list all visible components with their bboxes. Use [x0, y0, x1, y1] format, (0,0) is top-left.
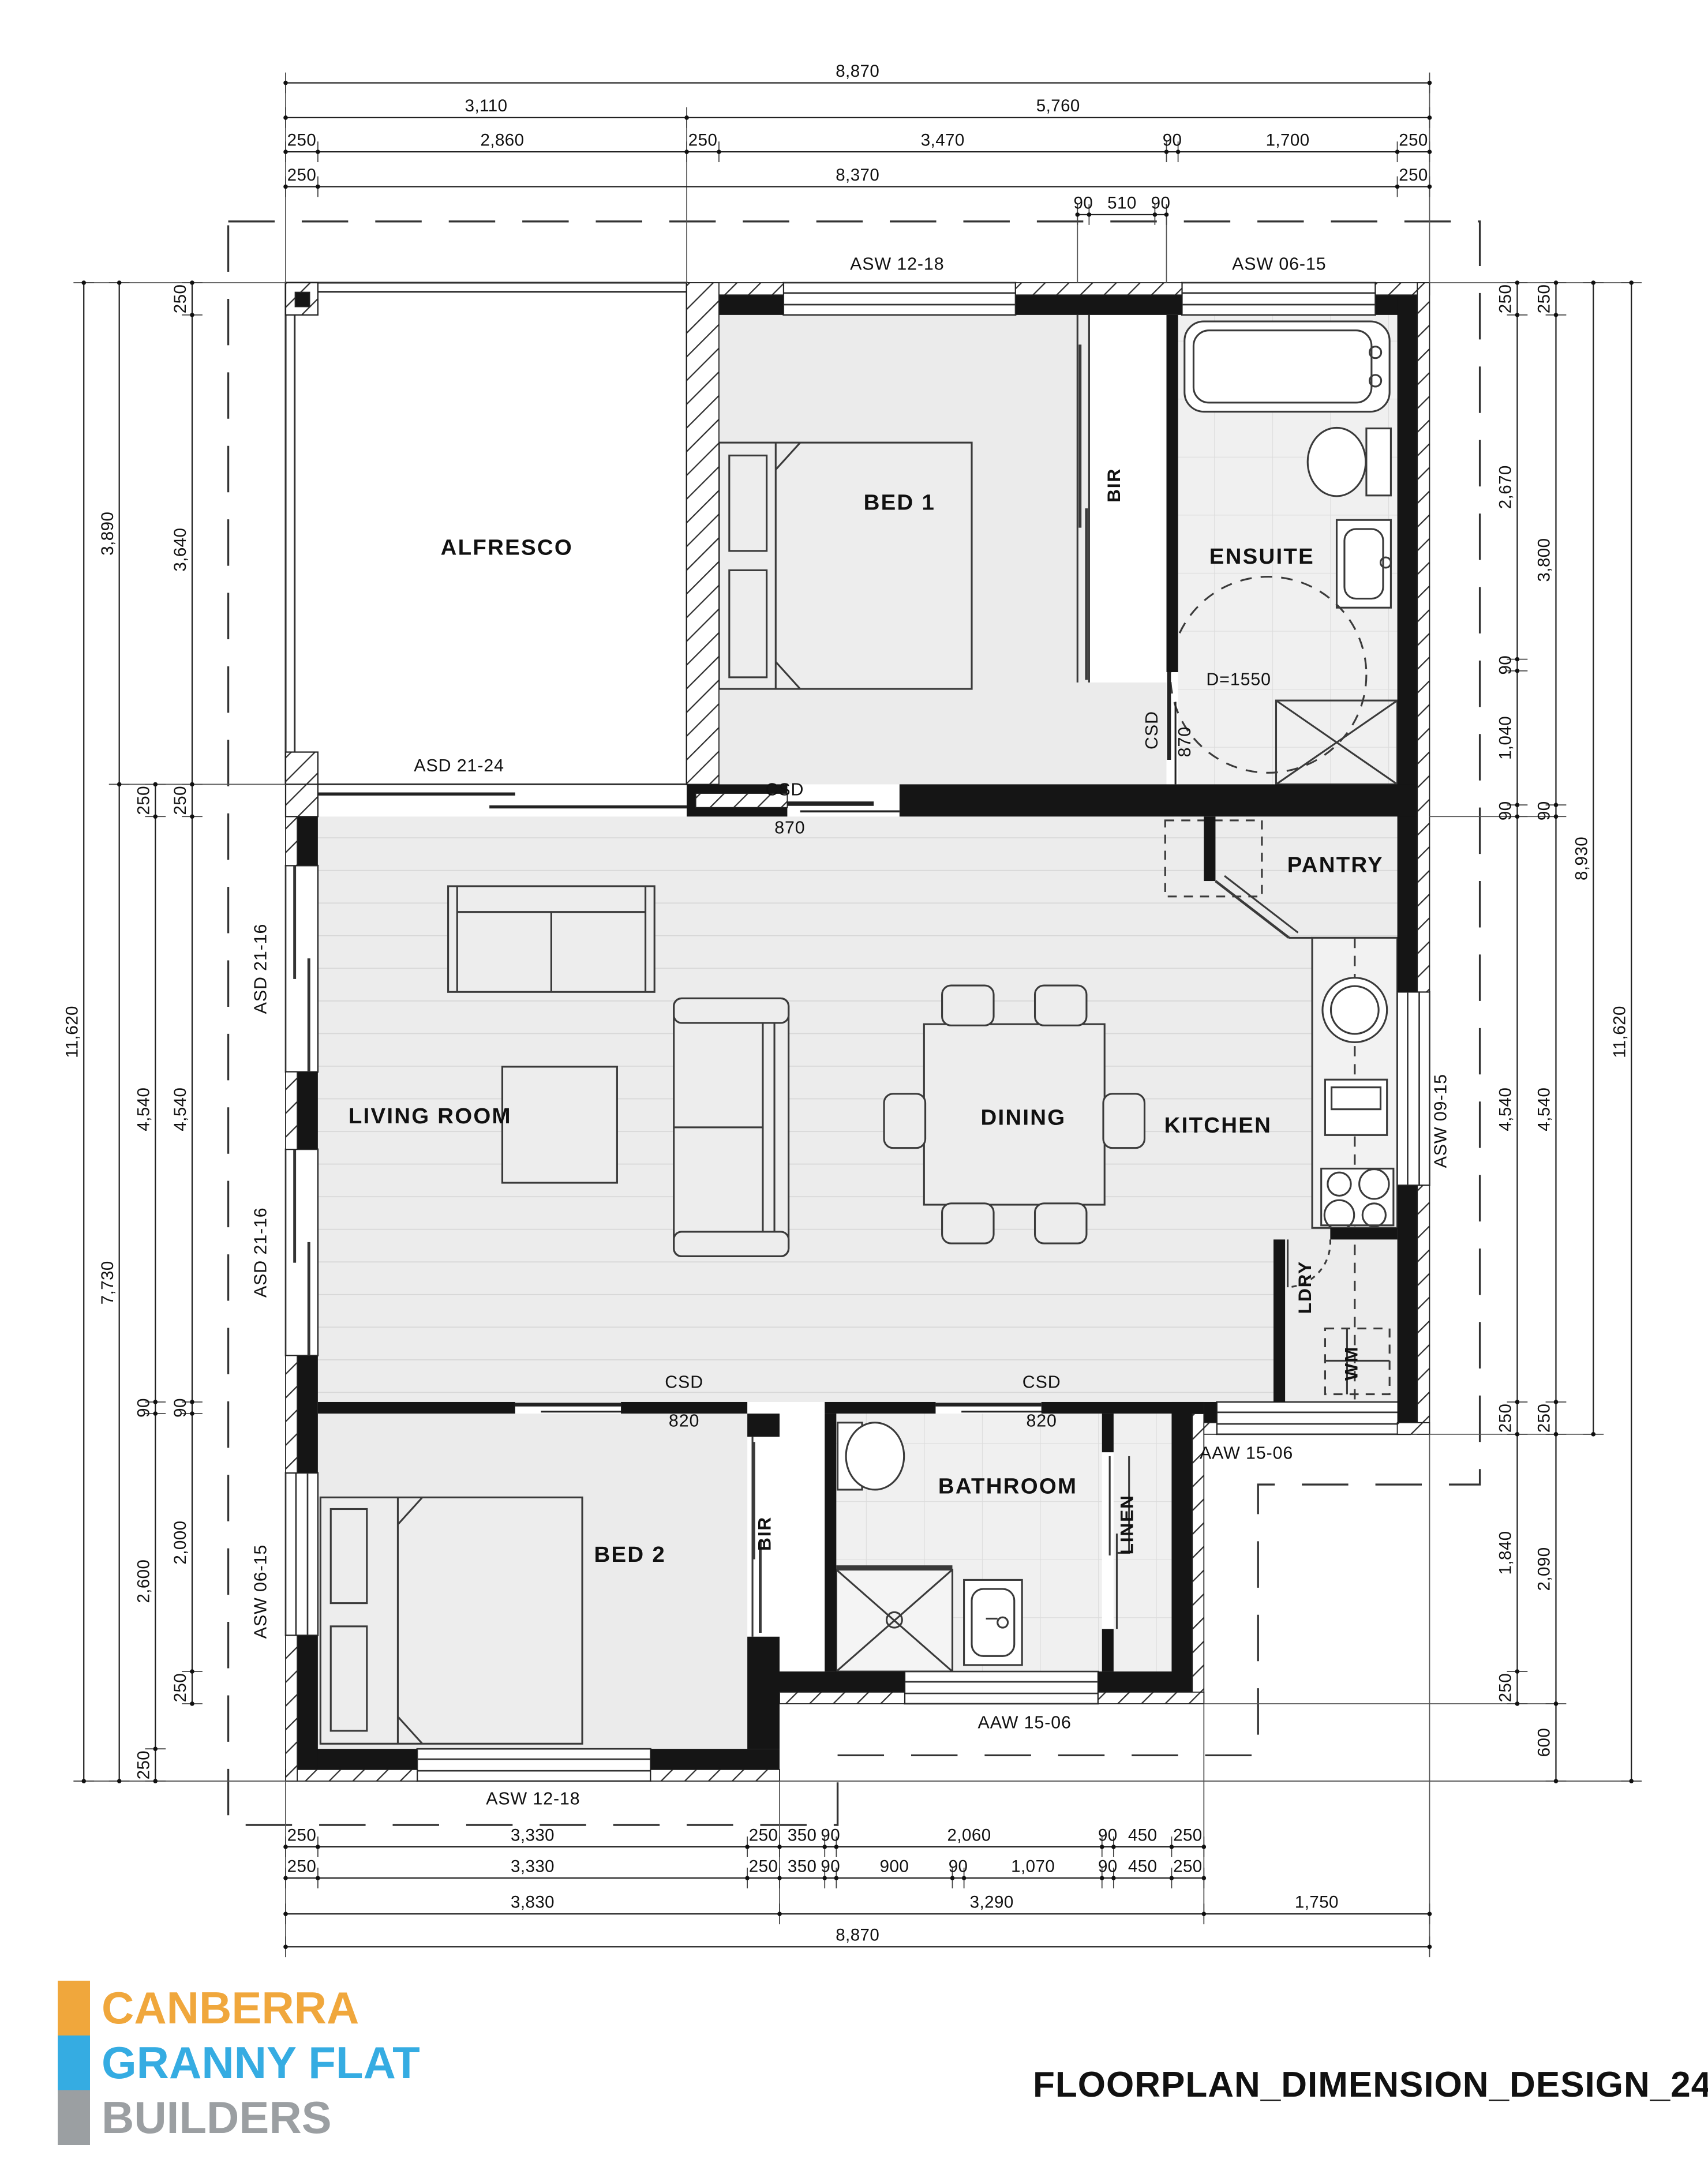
dim-label: 90 [821, 1825, 840, 1845]
room-label: LIVING ROOM [349, 1104, 512, 1129]
room-label: ALFRESCO [441, 535, 573, 560]
dim-dot [1164, 212, 1169, 217]
dim-label: 90 [821, 1857, 840, 1876]
dim-label: 250 [287, 1825, 317, 1845]
dim-dot [684, 115, 689, 120]
dim-dot [1515, 1669, 1520, 1674]
dim-dot [316, 185, 320, 189]
dim-label: 250 [171, 1673, 190, 1703]
dim-label: 250 [688, 130, 718, 149]
dim-dot [1629, 280, 1634, 285]
logo-text-line3: BUILDERS [102, 2090, 621, 2145]
dim-label: 90 [1496, 655, 1515, 675]
door-label: CSD [665, 1372, 703, 1392]
dim-dot [745, 1845, 750, 1849]
dim-dot [1554, 1400, 1559, 1404]
dim-dot [1554, 280, 1559, 285]
window-label: ASD 21-16 [250, 924, 270, 1014]
logo-text-line1: CANBERRA [102, 1981, 621, 2035]
dim-label: 250 [1535, 1404, 1554, 1433]
dim-label: 250 [134, 1750, 153, 1780]
dim-dot [190, 313, 194, 317]
dim-label: 90 [1496, 801, 1515, 820]
dim-label: 250 [1496, 284, 1515, 314]
dim-dot [1164, 149, 1169, 154]
dim-dot [1428, 115, 1432, 120]
dim-dot [777, 1876, 782, 1880]
window-label: ASD 21-16 [250, 1207, 270, 1298]
dim-dot [1515, 313, 1520, 317]
dim-dot [822, 1876, 827, 1880]
bathroom-toilet [838, 1423, 904, 1490]
fixture-label: BIR [1103, 468, 1124, 503]
dim-dot [190, 814, 194, 819]
dim-label: 450 [1128, 1857, 1158, 1876]
dim-dot [190, 1669, 194, 1674]
alfresco-deck [286, 283, 687, 784]
dim-dot [1428, 149, 1432, 154]
dim-dot [190, 782, 194, 787]
dim-label: 8,370 [836, 166, 879, 185]
dim-label: 2,860 [480, 130, 524, 149]
fixture-label: LINEN [1116, 1494, 1137, 1554]
dim-dot [1591, 280, 1595, 285]
door-label: 870 [774, 818, 805, 837]
dim-dot [283, 1876, 288, 1880]
window-label: ASD 21-24 [414, 756, 504, 775]
dim-label: 250 [1173, 1825, 1203, 1845]
dim-dot [822, 1845, 827, 1849]
dim-dot [1202, 1845, 1207, 1849]
window-ldry-bottom [1217, 1402, 1410, 1434]
bed1-bed [719, 443, 972, 689]
dim-label: 900 [880, 1857, 909, 1876]
bathroom-shower [836, 1567, 952, 1671]
tv-unit [448, 886, 655, 992]
logo-bar-gray [58, 2090, 90, 2145]
dim-label: 250 [749, 1857, 778, 1876]
dim-dot [117, 280, 122, 285]
logo-bar-orange [58, 1981, 90, 2035]
dim-label: 7,730 [98, 1261, 117, 1304]
dim-label: 250 [287, 166, 317, 185]
room-label: BATHROOM [938, 1474, 1077, 1499]
dim-label: 250 [1173, 1857, 1203, 1876]
room-label: BED 2 [594, 1542, 666, 1567]
dim-label: 90 [171, 1398, 190, 1418]
dim-dot [1428, 1911, 1432, 1916]
dim-label: 250 [1399, 166, 1428, 185]
dim-dot [1202, 1911, 1207, 1916]
dim-dot [283, 115, 288, 120]
dim-dot [1087, 212, 1092, 217]
bed2-bed [320, 1497, 582, 1744]
dim-label: 250 [1496, 1673, 1515, 1703]
dim-label: 2,060 [947, 1825, 991, 1845]
dim-label: 2,670 [1496, 465, 1515, 509]
dim-dot [117, 1779, 122, 1783]
window-label: ASW 12-18 [850, 254, 944, 274]
room-label: PANTRY [1287, 852, 1384, 877]
dim-label: 2,000 [171, 1521, 190, 1565]
dim-label: 2,600 [134, 1560, 153, 1603]
dim-dot [1428, 81, 1432, 85]
dim-dot [117, 782, 122, 787]
window-label: ASW 06-15 [1232, 254, 1326, 274]
logo-text-line2: GRANNY FLAT [102, 2035, 621, 2090]
dim-dot [316, 149, 320, 154]
dim-label: 250 [171, 786, 190, 815]
ensuite-toilet [1308, 428, 1391, 496]
dim-label: 90 [1163, 130, 1182, 149]
dim-dot [283, 81, 288, 85]
dim-dot [1515, 1400, 1520, 1404]
dim-label: 1,750 [1295, 1893, 1339, 1912]
dim-label: 250 [287, 1857, 317, 1876]
dim-dot [153, 1779, 158, 1783]
door-label: CSD [1022, 1372, 1061, 1392]
alfresco-posts [286, 283, 318, 816]
dim-dot [950, 1876, 955, 1880]
dim-label: 3,110 [465, 96, 508, 115]
dim-label: 90 [1535, 801, 1554, 820]
dim-label: 3,290 [970, 1893, 1014, 1912]
dim-label: 90 [1098, 1825, 1118, 1845]
dim-label: 3,890 [98, 512, 117, 556]
drawing-title: FLOORPLAN_DIMENSION_DESIGN_241 [1033, 2064, 1679, 2105]
dim-dot [153, 782, 158, 787]
dim-dot [1591, 1432, 1595, 1437]
dim-dot [1554, 1701, 1559, 1706]
dim-label: 4,540 [171, 1088, 190, 1131]
window-label: AAW 15-06 [978, 1712, 1072, 1732]
dim-label: 11,620 [62, 1006, 81, 1058]
window-bed2-left [286, 1473, 318, 1636]
dim-label: 250 [1535, 284, 1554, 314]
dim-label: 2,090 [1535, 1547, 1554, 1591]
dim-dot [81, 1779, 86, 1783]
dim-dot [1554, 803, 1559, 807]
dim-dot [1111, 1876, 1116, 1880]
dim-dot [777, 1845, 782, 1849]
door-label: D=1550 [1206, 669, 1271, 689]
dim-label: 510 [1107, 193, 1137, 212]
dim-label: 250 [749, 1825, 778, 1845]
logo-bar-blue [58, 2035, 90, 2090]
dim-dot [283, 1845, 288, 1849]
dim-label: 250 [287, 130, 317, 149]
dim-dot [1100, 1845, 1104, 1849]
dim-label: 11,620 [1610, 1006, 1629, 1058]
window-label: ASW 06-15 [250, 1545, 270, 1639]
dim-dot [153, 1411, 158, 1416]
door-label: CSD [766, 779, 804, 799]
dim-dot [1202, 1876, 1207, 1880]
dim-label: 1,070 [1011, 1857, 1055, 1876]
dim-label: 250 [171, 284, 190, 314]
dim-dot [834, 1876, 839, 1880]
dim-label: 3,640 [171, 528, 190, 572]
sofa [674, 998, 789, 1256]
dim-dot [1515, 1701, 1520, 1706]
dim-dot [153, 1746, 158, 1751]
dim-dot [834, 1845, 839, 1849]
dim-dot [316, 1845, 320, 1849]
dim-dot [190, 280, 194, 285]
dim-dot [1428, 1944, 1432, 1949]
dim-dot [283, 185, 288, 189]
dim-dot [1170, 1876, 1174, 1880]
dim-dot [1515, 280, 1520, 285]
dim-label: 90 [1098, 1857, 1118, 1876]
dim-label: 90 [949, 1857, 968, 1876]
dim-dot [1170, 1845, 1174, 1849]
door-asd-left-2 [286, 1149, 318, 1356]
dim-dot [153, 1400, 158, 1404]
dim-dot [1515, 803, 1520, 807]
room-label: BED 1 [864, 490, 935, 515]
dim-dot [1554, 814, 1559, 819]
dim-dot [190, 1400, 194, 1404]
window-bed2-bottom [417, 1749, 651, 1781]
dim-dot [684, 149, 689, 154]
dim-label: 1,840 [1496, 1531, 1515, 1575]
window-label: ASW 09-15 [1431, 1074, 1451, 1168]
dim-dot [190, 1411, 194, 1416]
dim-dot [1554, 313, 1559, 317]
dim-label: 8,930 [1572, 837, 1591, 880]
dim-dot [962, 1876, 967, 1880]
dim-label: 250 [134, 786, 153, 815]
dim-dot [1153, 212, 1158, 217]
coffee-table [502, 1067, 617, 1183]
dim-label: 4,540 [1496, 1088, 1515, 1131]
dim-dot [283, 149, 288, 154]
dim-label: 350 [788, 1825, 817, 1845]
ensuite-vanity [1337, 520, 1391, 608]
door-label: CSD [1142, 711, 1162, 749]
room-label: KITCHEN [1164, 1113, 1272, 1138]
fixture-label: LDRY [1294, 1261, 1315, 1314]
dim-label: 4,540 [134, 1088, 153, 1131]
dim-dot [283, 1944, 288, 1949]
dim-label: 350 [788, 1857, 817, 1876]
floorplan-sheet: 8,8703,1105,7602502,8602503,470901,70025… [0, 0, 1708, 2163]
floorplan-canvas: 8,8703,1105,7602502,8602503,470901,70025… [0, 0, 1708, 2163]
dim-dot [1515, 669, 1520, 673]
room-label: DINING [980, 1105, 1066, 1130]
window-label: AAW 15-06 [1200, 1443, 1293, 1463]
dim-dot [1629, 1779, 1634, 1783]
fixture-label: WM [1340, 1346, 1361, 1381]
dim-label: 5,760 [1036, 96, 1080, 115]
dim-dot [1111, 1845, 1116, 1849]
dim-dot [1554, 1779, 1559, 1783]
dim-dot [153, 814, 158, 819]
dim-dot [1515, 1432, 1520, 1437]
dim-label: 250 [1399, 130, 1428, 149]
dim-label: 450 [1128, 1825, 1158, 1845]
dim-label: 3,330 [511, 1825, 555, 1845]
door-label: 820 [1026, 1411, 1057, 1430]
dim-dot [1428, 185, 1432, 189]
dim-dot [1176, 149, 1181, 154]
dim-dot [1075, 212, 1080, 217]
dim-dot [1395, 185, 1400, 189]
dim-label: 3,470 [921, 130, 965, 149]
dim-label: 600 [1535, 1728, 1554, 1757]
dim-dot [1395, 149, 1400, 154]
bathroom-vanity [964, 1580, 1022, 1665]
fixture-label: BIR [754, 1516, 774, 1551]
dim-label: 8,870 [836, 1926, 879, 1945]
dim-dot [1515, 814, 1520, 819]
dim-label: 90 [1073, 193, 1093, 212]
dim-label: 4,540 [1535, 1088, 1554, 1131]
room-label: ENSUITE [1209, 544, 1314, 569]
dim-dot [316, 1876, 320, 1880]
dim-label: 250 [1496, 1404, 1515, 1433]
dim-dot [745, 1876, 750, 1880]
dim-dot [777, 1911, 782, 1916]
dim-label: 1,040 [1496, 716, 1515, 760]
dim-dot [283, 1911, 288, 1916]
window-bathroom-bottom [905, 1671, 1098, 1704]
dim-dot [1554, 1432, 1559, 1437]
door-asd-left-1 [286, 865, 318, 1072]
window-kitchen-right [1398, 992, 1430, 1185]
dim-label: 1,700 [1266, 130, 1310, 149]
door-label: 820 [669, 1411, 699, 1430]
dim-label: 8,870 [836, 62, 879, 81]
dim-dot [190, 1701, 194, 1706]
dim-label: 90 [1151, 193, 1171, 212]
window-bed1-top [784, 283, 1016, 315]
dim-dot [81, 280, 86, 285]
door-label: 870 [1175, 726, 1194, 757]
dim-label: 90 [134, 1398, 153, 1418]
window-ensuite-top [1182, 283, 1375, 315]
door-asd-alfresco [318, 794, 687, 807]
dim-dot [717, 149, 721, 154]
window-label: ASW 12-18 [486, 1789, 580, 1808]
dim-dot [1515, 657, 1520, 662]
dim-label: 3,830 [511, 1893, 555, 1912]
dim-dot [1100, 1876, 1104, 1880]
dim-label: 3,330 [511, 1857, 555, 1876]
dim-label: 3,800 [1535, 538, 1554, 582]
ensuite-bath [1185, 321, 1389, 411]
